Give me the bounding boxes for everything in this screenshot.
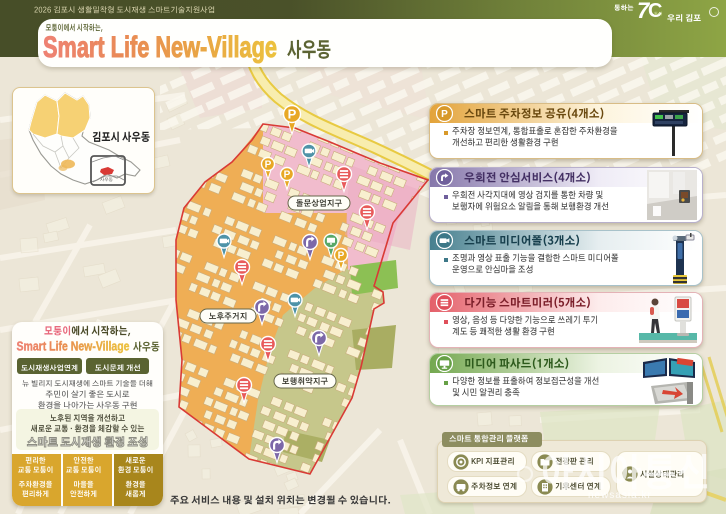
svg-text:Smart Life New-Village: Smart Life New-Village bbox=[43, 31, 277, 64]
svg-text:newsasia.kr: newsasia.kr bbox=[588, 490, 652, 501]
svg-text:Smart Life New-Village: Smart Life New-Village bbox=[17, 339, 130, 354]
